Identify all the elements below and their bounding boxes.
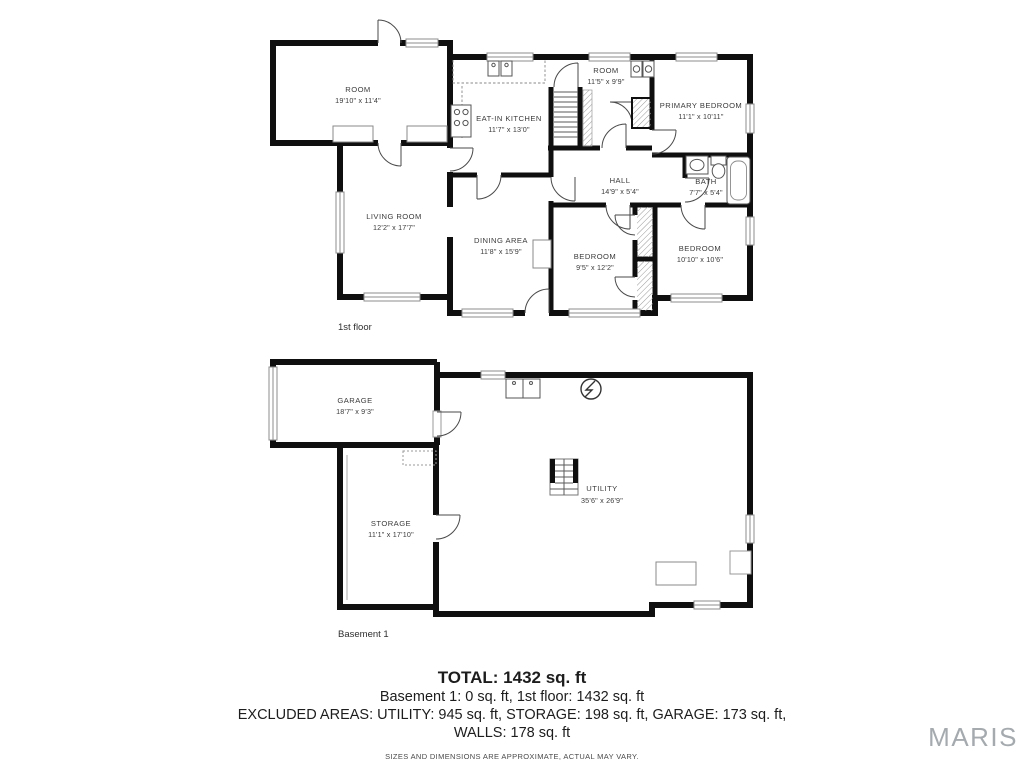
room-label-primary-bedroom: PRIMARY BEDROOM 11'1" x 10'11" <box>660 101 742 121</box>
floorplan-drawing: ROOM 19'10" x 11'4" EAT-IN KITCHEN 11'7"… <box>0 0 1024 768</box>
svg-text:HALL: HALL <box>610 176 631 185</box>
svg-text:LIVING ROOM: LIVING ROOM <box>366 212 422 221</box>
basement-label: Basement 1 <box>338 629 389 640</box>
svg-text:9'5" x 12'2": 9'5" x 12'2" <box>576 263 614 272</box>
room-label-living-room: LIVING ROOM 12'2" x 17'7" <box>366 212 422 232</box>
svg-text:EAT-IN KITCHEN: EAT-IN KITCHEN <box>476 114 542 123</box>
room-label-bedroom-right: BEDROOM 10'10" x 10'6" <box>677 244 723 264</box>
svg-text:11'7" x 13'0": 11'7" x 13'0" <box>488 125 530 134</box>
svg-text:DINING AREA: DINING AREA <box>474 236 528 245</box>
svg-text:BEDROOM: BEDROOM <box>574 252 616 261</box>
staircase-first-floor <box>554 90 592 146</box>
svg-text:BATH: BATH <box>695 177 717 186</box>
summary-floors-line: Basement 1: 0 sq. ft, 1st floor: 1432 sq… <box>0 688 1024 706</box>
svg-text:18'7" x 9'3": 18'7" x 9'3" <box>336 407 374 416</box>
furnace-icon <box>581 379 601 399</box>
svg-text:STORAGE: STORAGE <box>371 519 411 528</box>
room-label-storage: STORAGE 11'1" x 17'10" <box>368 519 414 539</box>
room-label-utility: UTILITY 35'6" x 26'9" <box>581 484 623 505</box>
room-label-garage: GARAGE 18'7" x 9'3" <box>336 396 374 416</box>
svg-text:35'6" x 26'9": 35'6" x 26'9" <box>581 496 623 505</box>
svg-text:UTILITY: UTILITY <box>586 484 617 493</box>
staircase-basement <box>550 459 578 495</box>
room-label-bedroom-left: BEDROOM 9'5" x 12'2" <box>574 252 616 272</box>
room-label-hall: HALL 14'9" x 5'4" <box>601 176 639 196</box>
summary-walls-line: WALLS: 178 sq. ft <box>0 724 1024 742</box>
first-floor-doors <box>378 20 709 313</box>
svg-text:10'10" x 10'6": 10'10" x 10'6" <box>677 255 723 264</box>
summary-excluded-line: EXCLUDED AREAS: UTILITY: 945 sq. ft, STO… <box>0 706 1024 724</box>
room-label-room-center: ROOM 11'5" x 9'9" <box>587 66 625 86</box>
room-label-bath: BATH 7'7" x 5'4" <box>689 177 723 197</box>
toilet-icon <box>711 156 726 178</box>
svg-text:11'1" x 10'11": 11'1" x 10'11" <box>678 112 723 121</box>
summary-total: TOTAL: 1432 sq. ft <box>0 668 1024 688</box>
room-label-room-top-left: ROOM 19'10" x 11'4" <box>335 85 381 105</box>
basement-plan: GARAGE 18'7" x 9'3" STORAGE 11'1" x 17'1… <box>269 362 754 640</box>
washer-dryer-icon <box>631 61 654 77</box>
first-floor-plan: ROOM 19'10" x 11'4" EAT-IN KITCHEN 11'7"… <box>273 20 754 333</box>
basement-furniture <box>656 551 751 585</box>
svg-text:11'5" x 9'9": 11'5" x 9'9" <box>587 77 625 86</box>
bathtub-icon <box>727 157 750 204</box>
laundry-sink-icon <box>506 379 540 398</box>
first-floor-label: 1st floor <box>338 322 372 333</box>
svg-text:19'10" x 11'4": 19'10" x 11'4" <box>335 96 381 105</box>
svg-text:BEDROOM: BEDROOM <box>679 244 721 253</box>
summary-disclaimer: SIZES AND DIMENSIONS ARE APPROXIMATE, AC… <box>0 752 1024 761</box>
svg-text:ROOM: ROOM <box>593 66 618 75</box>
svg-text:PRIMARY BEDROOM: PRIMARY BEDROOM <box>660 101 742 110</box>
svg-text:12'2" x 17'7": 12'2" x 17'7" <box>373 223 415 232</box>
svg-text:11'8" x 15'9": 11'8" x 15'9" <box>480 247 522 256</box>
room-label-kitchen: EAT-IN KITCHEN 11'7" x 13'0" <box>476 114 542 134</box>
room-label-dining-area: DINING AREA 11'8" x 15'9" <box>474 236 528 256</box>
maris-logo: MARIS <box>928 722 1018 753</box>
first-floor-exterior-walls <box>273 43 750 313</box>
svg-text:GARAGE: GARAGE <box>337 396 372 405</box>
svg-text:11'1" x 17'10": 11'1" x 17'10" <box>368 530 414 539</box>
bath-vanity-icon <box>686 156 708 174</box>
svg-text:14'9" x 5'4": 14'9" x 5'4" <box>601 187 639 196</box>
svg-text:ROOM: ROOM <box>345 85 370 94</box>
svg-text:7'7" x 5'4": 7'7" x 5'4" <box>689 188 723 197</box>
stove-icon <box>451 105 471 137</box>
floorplan-page: ROOM 19'10" x 11'4" EAT-IN KITCHEN 11'7"… <box>0 0 1024 768</box>
kitchen-sink-icon <box>488 61 512 76</box>
summary-block: TOTAL: 1432 sq. ft Basement 1: 0 sq. ft,… <box>0 668 1024 761</box>
